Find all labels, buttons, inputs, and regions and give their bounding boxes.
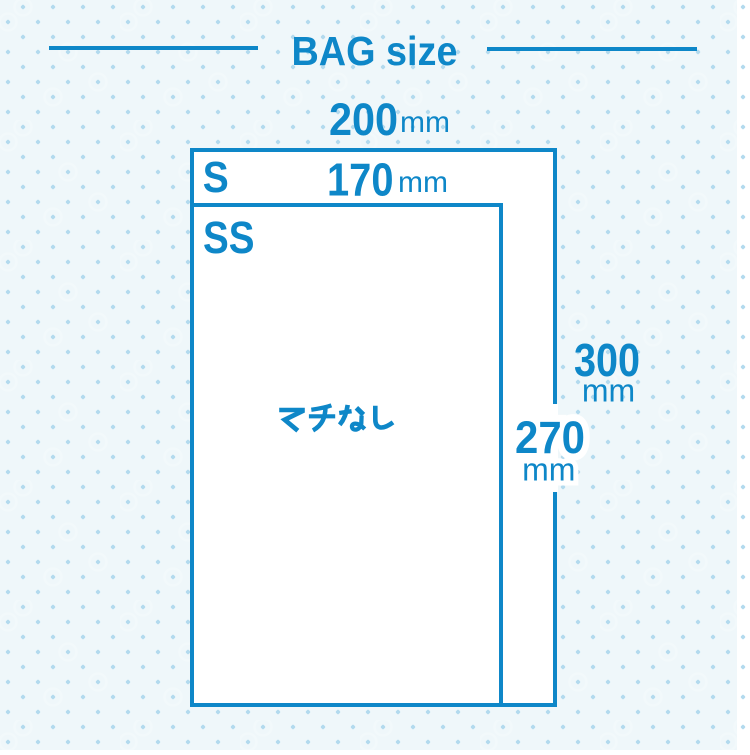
svg-text:mm: mm	[400, 106, 450, 139]
svg-text:BAG size: BAG size	[292, 28, 458, 74]
svg-text:mm: mm	[522, 451, 575, 487]
svg-text:S: S	[203, 153, 229, 202]
svg-text:SS: SS	[203, 212, 255, 263]
svg-text:170: 170	[327, 154, 394, 206]
svg-text:mm: mm	[398, 166, 448, 199]
svg-text:mm: mm	[582, 372, 635, 408]
svg-text:200: 200	[329, 94, 398, 145]
